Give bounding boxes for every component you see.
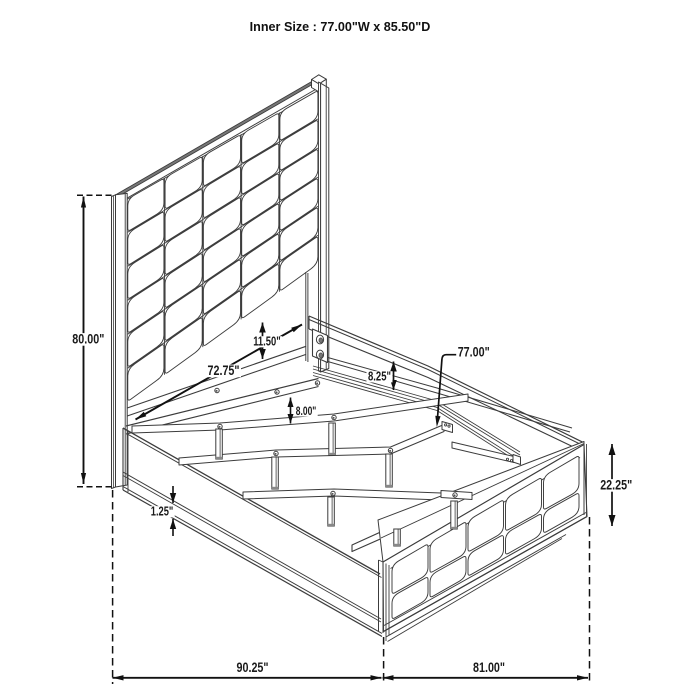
svg-text:72.75": 72.75" bbox=[208, 362, 240, 378]
svg-text:11.50": 11.50" bbox=[253, 335, 281, 349]
svg-text:81.00": 81.00" bbox=[473, 659, 505, 675]
svg-text:77.00": 77.00" bbox=[458, 344, 490, 360]
svg-text:80.00": 80.00" bbox=[72, 331, 104, 347]
svg-text:90.25": 90.25" bbox=[237, 659, 269, 675]
svg-text:1.25": 1.25" bbox=[151, 505, 174, 519]
svg-text:8.00": 8.00" bbox=[296, 406, 317, 418]
svg-text:8.25": 8.25" bbox=[368, 370, 391, 384]
svg-text:22.25": 22.25" bbox=[600, 477, 632, 493]
